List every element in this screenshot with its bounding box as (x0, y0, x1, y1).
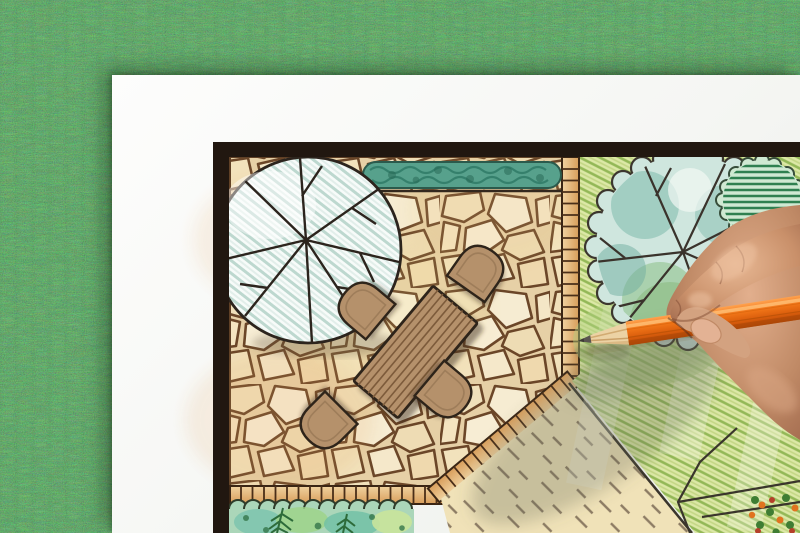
planting-bed (228, 500, 414, 533)
hedge-strip (363, 162, 562, 191)
garden-plan-drawing (0, 0, 800, 533)
photo-scene (0, 0, 800, 533)
